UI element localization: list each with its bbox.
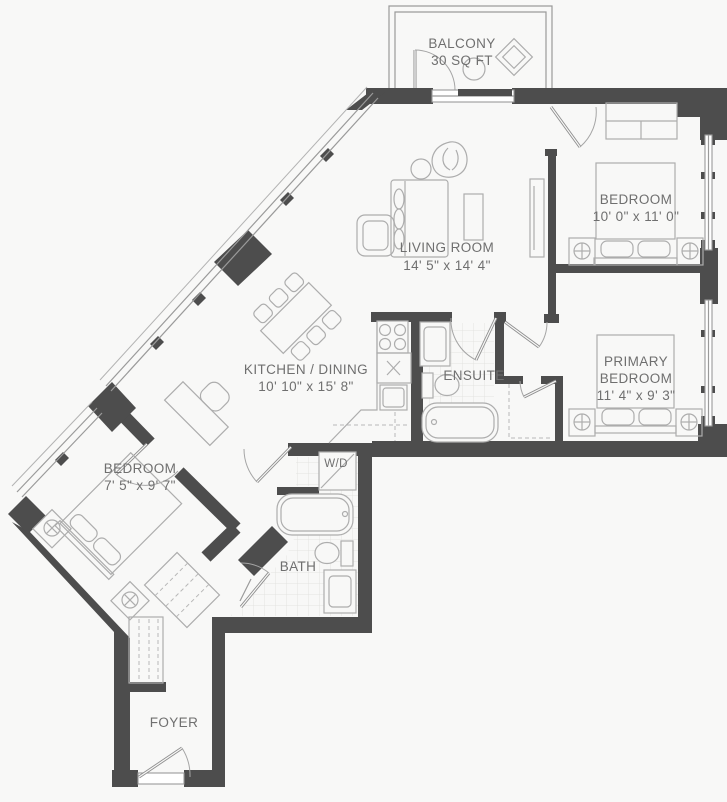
bedroom-dims: 10' 0" x 11' 0" [593, 209, 680, 224]
toilet-tank-icon [341, 541, 353, 566]
toilet-bowl-icon [315, 543, 339, 564]
bedroom2-dims: 7' 5" x 9' 7" [104, 478, 176, 493]
ensuite-label: ENSUITE [443, 368, 504, 383]
floor-plan: BALCONY 30 SQ FT LIVING ROOM 14' 5" x 14… [0, 0, 727, 802]
ne-corner-return [677, 104, 700, 117]
living-room-label: LIVING ROOM [400, 240, 494, 255]
bath-south-wall [225, 617, 372, 633]
living-room-dims: 14' 5" x 14' 4" [403, 258, 491, 273]
south-wall-right [372, 441, 727, 457]
foyer-label: FOYER [150, 715, 199, 730]
sliding-door-panel [458, 89, 512, 96]
floor-plan-svg: BALCONY 30 SQ FT LIVING ROOM 14' 5" x 14… [0, 0, 727, 802]
primary-bedroom-label: PRIMARY [604, 354, 668, 369]
ne-corner-wall [700, 88, 727, 140]
ensuite-bathtub-icon [422, 403, 498, 442]
kitchen-dining-dims: 10' 10" x 15' 8" [258, 379, 353, 394]
foyer-east-wall [212, 617, 225, 779]
entry-wall-left [112, 770, 138, 787]
balcony-label: BALCONY [428, 36, 495, 51]
bath-east-wall [358, 443, 372, 633]
bedroom-label: BEDROOM [600, 192, 673, 207]
laundry-label: W/D [324, 458, 348, 470]
primary-bedroom-dims: 11' 4" x 9' 3" [597, 388, 676, 403]
balcony-area-label: 30 SQ FT [431, 53, 493, 68]
living-bedroom-divider [548, 150, 556, 322]
ensuite-toilet-tank-icon [422, 373, 433, 398]
primary-bedroom-label2: BEDROOM [600, 371, 673, 386]
balcony-sliding-door [432, 89, 514, 102]
bathtub-icon [277, 494, 353, 535]
bath-label: BATH [280, 559, 317, 574]
kitchen-dining-label: KITCHEN / DINING [244, 362, 368, 377]
top-wall-right [512, 88, 727, 104]
bedroom2-label: BEDROOM [104, 461, 177, 476]
closet-east-wall [555, 376, 563, 448]
